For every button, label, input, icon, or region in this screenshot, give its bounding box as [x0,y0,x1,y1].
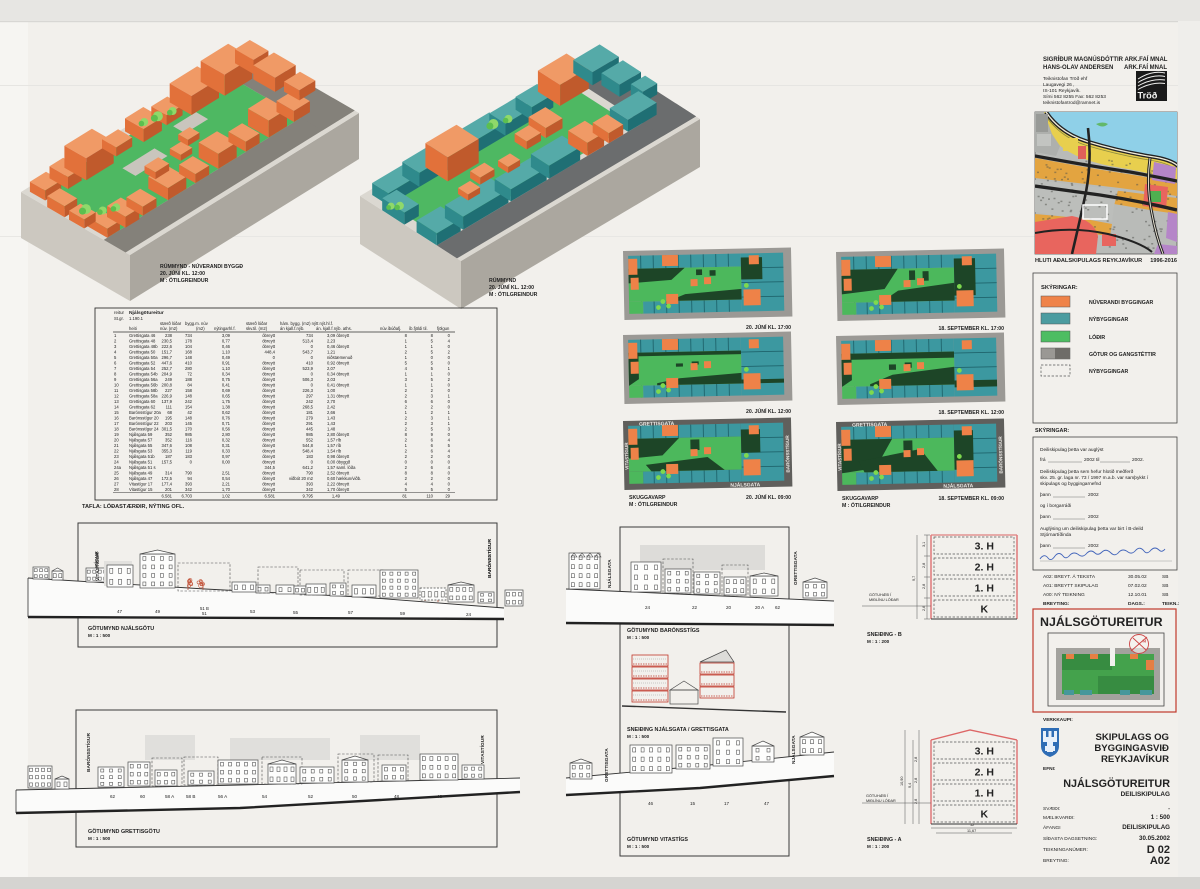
svg-text:GÖTUHÆÐ Í: GÖTUHÆÐ Í [866,794,889,798]
svg-text:50: 50 [352,794,358,799]
svg-text:óbreytt: óbreytt [262,388,276,393]
svg-text:1,70 óbreytt: 1,70 óbreytt [327,487,350,492]
svg-text:0,71: 0,71 [222,421,231,426]
svg-text:2002 til: 2002 til [1084,457,1099,463]
svg-text:3,09 óbreytt: 3,09 óbreytt [327,333,350,338]
svg-text:242: 242 [185,399,193,404]
svg-text:frá: frá [1040,457,1046,463]
svg-text:2002: 2002 [1088,543,1099,549]
svg-text:0,33: 0,33 [222,448,231,453]
svg-text:137,9: 137,9 [162,399,173,404]
svg-text:985: 985 [306,432,314,437]
svg-text:SNEIÐING NJÁLSGATA / GRETTISGA: SNEIÐING NJÁLSGATA / GRETTISGATA [627,726,729,733]
svg-text:Njálsgata 51: Njálsgata 51 [129,459,153,464]
svg-text:53: 53 [250,609,256,614]
svg-text:A01: BREYTT SKIPULAG: A01: BREYTT SKIPULAG [1043,583,1099,589]
svg-text:Grettisgata 50: Grettisgata 50 [129,349,156,354]
svg-text:Vitastígur 17: Vitastígur 17 [129,481,153,486]
svg-text:1,21: 1,21 [327,349,336,354]
svg-text:1,57 ríb: 1,57 ríb [327,443,342,448]
svg-text:1,54 ríb: 1,54 ríb [327,448,342,453]
svg-text:GÖTUMYND VITASTÍGS: GÖTUMYND VITASTÍGS [627,835,688,843]
svg-text:26: 26 [114,476,119,481]
svg-text:óbreytt: óbreytt [262,360,276,365]
svg-text:M : 1 : 500: M : 1 : 500 [627,635,650,640]
svg-text:1,02: 1,02 [222,493,231,498]
svg-text:445: 445 [306,426,314,431]
svg-text:20 A: 20 A [755,605,765,610]
svg-text:20. JÚNÍ KL. 12:00: 20. JÚNÍ KL. 12:00 [160,269,205,277]
svg-text:187: 187 [165,454,173,459]
svg-text:344,5: 344,5 [265,465,276,470]
svg-text:óbreytt: óbreytt [262,404,276,409]
svg-text:11,67: 11,67 [967,829,976,833]
svg-text:0,34: 0,34 [222,371,231,376]
svg-text:3. H: 3. H [975,745,994,757]
svg-text:1,43: 1,43 [327,415,336,420]
svg-text:þann: þann [1040,492,1051,498]
svg-text:nýtingarhl.f.: nýtingarhl.f. [214,326,236,331]
svg-text:60: 60 [140,794,146,799]
svg-text:29: 29 [445,493,450,498]
svg-text:St.gr.: St.gr. [114,316,124,321]
svg-text:314: 314 [165,470,173,475]
svg-text:LÓÐIR: LÓÐIR [1089,333,1105,341]
svg-text:104: 104 [185,344,193,349]
svg-text:342: 342 [185,487,193,492]
svg-text:Teiknistofan Tröð ehf: Teiknistofan Tröð ehf [1043,75,1088,82]
svg-text:BREYTING:: BREYTING: [1043,858,1069,864]
svg-text:18. SEPTEMBER KL. 09:00: 18. SEPTEMBER KL. 09:00 [939,496,1005,502]
svg-text:2. H: 2. H [975,561,994,573]
svg-text:172,5: 172,5 [162,476,173,481]
svg-text:SKÝRINGAR:: SKÝRINGAR: [1041,284,1078,291]
svg-text:28: 28 [114,487,119,492]
svg-text:543,7: 543,7 [303,349,314,354]
svg-text:M : ÓTILGREINDUR: M : ÓTILGREINDUR [160,276,209,284]
svg-text:226,3: 226,3 [303,388,314,393]
svg-text:297: 297 [306,393,314,398]
svg-text:2,8: 2,8 [922,563,926,568]
svg-text:352: 352 [165,432,173,437]
svg-text:0,31: 0,31 [222,443,231,448]
svg-text:21: 21 [114,443,119,448]
svg-text:Grettisgata 48: Grettisgata 48 [129,338,156,343]
svg-text:Grettisgata 48b: Grettisgata 48b [129,344,158,349]
svg-text:1,48: 1,48 [327,426,336,431]
svg-text:þann: þann [1040,543,1051,549]
svg-text:M : 1 : 500: M : 1 : 500 [88,836,111,841]
svg-text:K: K [981,808,989,820]
svg-text:2,80 óbreytt: 2,80 óbreytt [327,432,350,437]
svg-text:Njálsgata 51b: Njálsgata 51b [129,454,155,459]
svg-text:M : 1 : 200: M : 1 : 200 [867,844,890,849]
svg-text:84: 84 [187,382,192,387]
svg-text:Barónsstígur 24: Barónsstígur 24 [129,426,159,431]
svg-text:óbreytt: óbreytt [262,459,276,464]
svg-text:óbreytt: óbreytt [262,377,276,382]
svg-text:óbreytt: óbreytt [262,454,276,459]
svg-text:Sími 562 8255 Fax: 562 8253: Sími 562 8255 Fax: 562 8253 [1043,94,1106,100]
svg-text:ÁFANGI: ÁFANGI [1043,824,1061,831]
svg-text:2,8: 2,8 [922,606,926,611]
svg-text:355,3: 355,3 [162,448,173,453]
svg-text:17: 17 [114,421,119,426]
svg-text:170: 170 [185,426,193,431]
svg-text:24: 24 [645,605,651,610]
svg-text:17: 17 [724,801,730,806]
svg-text:SB: SB [1162,574,1168,580]
svg-text:EFNI:: EFNI: [1043,766,1056,772]
svg-text:SB: SB [1162,583,1168,589]
svg-text:Grettisgata 56b: Grettisgata 56b [129,382,158,387]
svg-text:1996-2016: 1996-2016 [1150,258,1177,264]
svg-text:Tröð: Tröð [1138,91,1158,101]
svg-text:M : 1 : 500: M : 1 : 500 [627,734,650,739]
svg-text:280: 280 [185,366,193,371]
svg-text:óbreytt: óbreytt [262,481,276,486]
svg-text:ARK.FAÍ MNAL: ARK.FAÍ MNAL [1124,63,1167,71]
svg-text:N: N [1143,639,1147,645]
svg-text:2,8: 2,8 [914,757,918,762]
svg-text:1. H: 1. H [975,787,994,799]
svg-text:393: 393 [306,481,314,486]
svg-text:Deiliskipulag þetta sem hefur: Deiliskipulag þetta sem hefur hlotið með… [1040,468,1134,475]
svg-text:46: 46 [437,794,443,799]
svg-text:MIÐLÍNU LÓÐAR: MIÐLÍNU LÓÐAR [866,798,896,803]
svg-text:1,57 ríb: 1,57 ríb [327,437,342,442]
svg-text:óbreytt: óbreytt [262,333,276,338]
svg-text:0,69: 0,69 [222,388,231,393]
svg-text:291: 291 [306,421,314,426]
svg-text:68: 68 [167,410,172,415]
svg-text:SKIPULAGS OG: SKIPULAGS OG [1095,732,1169,743]
svg-text:Deiliskipulag þetta var auglýs: Deiliskipulag þetta var auglýst [1040,447,1104,453]
svg-text:óbreytt: óbreytt [262,470,276,475]
svg-text:523,9: 523,9 [303,366,314,371]
svg-text:116: 116 [185,437,192,442]
svg-text:A02: A02 [1150,855,1170,867]
svg-text:20: 20 [114,437,119,442]
svg-text:SB: SB [1162,592,1168,598]
svg-text:10: 10 [114,382,119,387]
svg-text:skipulags og byggingarnefnd: skipulags og byggingarnefnd [1040,481,1101,487]
svg-text:reitur: reitur [114,310,125,315]
svg-text:Njálsgata 59: Njálsgata 59 [129,432,153,437]
svg-text:NÝBYGGINGAR: NÝBYGGINGAR [1089,368,1128,375]
svg-text:0,32: 0,32 [222,437,231,442]
svg-text:24: 24 [114,459,119,464]
svg-text:0,56: 0,56 [222,426,231,431]
svg-text:14: 14 [114,404,119,409]
svg-text:1,70: 1,70 [222,487,231,492]
svg-text:1,75: 1,75 [222,399,231,404]
svg-text:158: 158 [185,388,193,393]
svg-text:12: 12 [114,393,119,398]
svg-text:teiknistofantrod@ramnet.is: teiknistofantrod@ramnet.is [1043,100,1101,106]
svg-text:0,97: 0,97 [222,454,231,459]
svg-text:47: 47 [117,609,123,614]
svg-text:07.02.02: 07.02.02 [1128,583,1147,589]
svg-text:506,3: 506,3 [303,377,314,382]
svg-text:15: 15 [690,801,696,806]
svg-text:HLUTI AÐALSKIPULAGS REYKJAVÍKU: HLUTI AÐALSKIPULAGS REYKJAVÍKUR [1035,256,1142,264]
svg-text:790: 790 [306,470,314,475]
svg-text:skv.til. (m2): skv.til. (m2) [246,326,268,331]
svg-text:30.05.02: 30.05.02 [1128,574,1147,580]
svg-text:119: 119 [185,448,192,453]
svg-text:Njálsgata 57: Njálsgata 57 [129,437,153,442]
svg-text:1,43: 1,43 [327,421,336,426]
svg-text:227: 227 [165,388,173,393]
svg-text:0,34 óbreytt: 0,34 óbreytt [327,371,350,376]
svg-text:án kjall.f.nýb.: án kjall.f.nýb. [280,326,304,331]
svg-text:238: 238 [165,333,173,338]
svg-text:0,76: 0,76 [222,415,231,420]
svg-text:1,10: 1,10 [222,366,231,371]
svg-text:201: 201 [165,487,173,492]
svg-text:GRETTISGATA: GRETTISGATA [639,421,675,428]
svg-text:Grettisgata 54b: Grettisgata 54b [129,371,158,376]
svg-text:148: 148 [185,355,193,360]
svg-text:151,7: 151,7 [162,349,173,354]
svg-text:1,57 saml. lóða: 1,57 saml. lóða [327,465,356,470]
svg-text:410: 410 [185,360,193,365]
svg-text:M : ÓTILGREINDUR: M : ÓTILGREINDUR [842,501,891,509]
svg-text:0,91: 0,91 [222,360,231,365]
svg-text:GÖTUMYND BARÓNSSTÍGS: GÖTUMYND BARÓNSSTÍGS [627,626,700,634]
svg-text:12.10.01: 12.10.01 [1128,592,1147,598]
svg-text:183: 183 [306,454,314,459]
svg-text:222,6: 222,6 [162,344,173,349]
svg-text:58 A: 58 A [165,794,175,799]
svg-text:SÍÐASTA DAGSETNING:: SÍÐASTA DAGSETNING: [1043,835,1097,842]
svg-text:6.581: 6.581 [162,493,173,498]
svg-text:NÚVERANDI BYGGINGAR: NÚVERANDI BYGGINGAR [1089,299,1154,306]
svg-text:óbreytt: óbreytt [262,415,276,420]
svg-text:fjölgun: fjölgun [437,326,450,331]
svg-text:195: 195 [165,415,173,420]
svg-text:242: 242 [306,399,314,404]
svg-text:Njálsgata 49: Njálsgata 49 [129,470,153,475]
svg-text:án. kjall.f.nýb. aths.: án. kjall.f.nýb. aths. [316,326,352,331]
svg-text:Grettisgata 50a: Grettisgata 50a [129,355,158,360]
svg-text:641,2: 641,2 [303,465,314,470]
svg-text:0,41: 0,41 [222,382,231,387]
svg-text:SNEIÐING - B: SNEIÐING - B [867,632,902,638]
svg-text:72: 72 [187,371,192,376]
svg-text:íb.fjöldi til.: íb.fjöldi til. [409,326,428,331]
svg-text:10,90: 10,90 [900,776,904,786]
svg-text:1,38: 1,38 [222,404,231,409]
svg-text:157,5: 157,5 [162,459,173,464]
svg-text:3,09: 3,09 [222,333,231,338]
svg-text:148: 148 [185,393,193,398]
svg-text:RÚMMYND - NÚVERANDI BYGGÐ: RÚMMYND - NÚVERANDI BYGGÐ [160,263,243,270]
svg-text:óbreytt: óbreytt [262,487,276,492]
svg-text:Njálsgata 51 s: Njálsgata 51 s [129,465,156,470]
svg-text:SKUGGAVARP: SKUGGAVARP [842,496,879,502]
svg-text:niðstæmenuð: niðstæmenuð [327,355,353,360]
svg-text:óbreytt: óbreytt [262,476,276,481]
svg-text:410: 410 [306,360,314,365]
svg-text:0,65: 0,65 [222,393,231,398]
svg-text:NJÁLSGATA: NJÁLSGATA [606,559,613,588]
svg-text:IS-101 Reykjavík.: IS-101 Reykjavík. [1043,88,1081,94]
svg-text:0,92 óbreytt: 0,92 óbreytt [327,360,350,365]
svg-text:9.795: 9.795 [303,493,314,498]
svg-text:0,60 hækkun/viðb.: 0,60 hækkun/viðb. [327,476,361,481]
svg-text:30.05.2002: 30.05.2002 [1139,835,1171,842]
svg-text:DAGS.:: DAGS.: [1128,601,1145,607]
svg-text:2,8: 2,8 [914,778,918,783]
svg-text:REYKJAVÍKUR: REYKJAVÍKUR [1101,753,1169,765]
svg-text:1,00: 1,00 [327,388,336,393]
svg-text:94: 94 [187,476,192,481]
svg-text:BYGGINGASVIÐ: BYGGINGASVIÐ [1094,743,1169,754]
svg-text:GÖTUR OG GANGSTÉTTIR: GÖTUR OG GANGSTÉTTIR [1089,350,1156,358]
svg-text:óbreytt: óbreytt [262,366,276,371]
svg-text:544,8: 544,8 [303,443,314,448]
svg-text:Grettisgata 46: Grettisgata 46 [129,333,156,338]
svg-text:62: 62 [110,794,116,799]
svg-text:3,1: 3,1 [922,542,926,547]
svg-text:Grettisgata 52: Grettisgata 52 [129,360,156,365]
svg-text:MÆLIKVARÐI:: MÆLIKVARÐI: [1043,815,1075,821]
svg-text:188: 188 [185,377,193,382]
svg-text:óbreytt: óbreytt [262,371,276,376]
svg-text:0,46 óbreytt: 0,46 óbreytt [327,344,350,349]
svg-text:M : ÓTILGREINDUR: M : ÓTILGREINDUR [489,290,538,298]
svg-text:111: 111 [166,404,173,409]
svg-text:2,70: 2,70 [327,399,336,404]
svg-text:og í borgarráði: og í borgarráði [1040,502,1071,509]
svg-text:0,49: 0,49 [222,355,231,360]
svg-text:268,5: 268,5 [303,404,314,409]
svg-text:0,54: 0,54 [222,476,231,481]
svg-text:SNEIÐING - A: SNEIÐING - A [867,837,902,843]
svg-text:249: 249 [165,377,173,382]
svg-text:393: 393 [185,481,193,486]
svg-text:20. JÚNÍ KL. 12:00: 20. JÚNÍ KL. 12:00 [489,283,534,291]
svg-text:177,4: 177,4 [162,481,173,486]
svg-text:GÖTUMYND GRETTISGÖTU: GÖTUMYND GRETTISGÖTU [88,828,160,835]
svg-text:1,31 óbreytt: 1,31 óbreytt [327,393,350,398]
svg-text:DEILISKIPULAG: DEILISKIPULAG [1122,824,1170,831]
svg-text:Auglýsing um deiliskipulag þet: Auglýsing um deiliskipulag þetta var bir… [1040,526,1144,532]
svg-text:M : 1 : 500: M : 1 : 500 [88,633,111,638]
svg-text:145: 145 [185,421,193,426]
svg-text:SVÆÐI:: SVÆÐI: [1043,806,1060,812]
svg-text:Grettisgata 60: Grettisgata 60 [129,399,156,404]
svg-text:viðbót 20 m2: viðbót 20 m2 [289,476,314,481]
svg-text:0,62: 0,62 [222,410,231,415]
svg-text:1,10: 1,10 [222,349,231,354]
svg-text:20. JÚNÍ KL. 12:00: 20. JÚNÍ KL. 12:00 [746,407,791,415]
svg-text:MIÐLÍNU LÓÐAR: MIÐLÍNU LÓÐAR [869,597,899,602]
svg-text:Vitastígur 15: Vitastígur 15 [129,487,153,492]
svg-text:0,41 óbreytt: 0,41 óbreytt [327,382,350,387]
svg-text:18. SEPTEMBER KL. 17:00: 18. SEPTEMBER KL. 17:00 [939,326,1005,332]
svg-text:2002: 2002 [1088,514,1099,520]
svg-text:203: 203 [165,421,173,426]
svg-text:Stjórnartíðinda: Stjórnartíðinda [1040,531,1072,538]
svg-text:57: 57 [348,610,354,615]
svg-text:48: 48 [394,794,400,799]
svg-text:23: 23 [114,454,119,459]
svg-text:20: 20 [726,605,732,610]
svg-text:168: 168 [185,349,193,354]
svg-text:0,46: 0,46 [222,344,231,349]
svg-text:GRETTISGATA: GRETTISGATA [793,551,799,585]
svg-text:55: 55 [293,610,299,615]
svg-text:22: 22 [692,605,698,610]
svg-text:20. JÚNÍ KL. 09:00: 20. JÚNÍ KL. 09:00 [746,493,791,501]
svg-text:226,9: 226,9 [162,393,173,398]
svg-text:DEILISKIPULAG: DEILISKIPULAG [1121,791,1170,798]
svg-text:24: 24 [466,612,472,617]
svg-text:Njálsgata 53: Njálsgata 53 [129,448,153,453]
svg-text:Njálsgata 47: Njálsgata 47 [129,476,153,481]
svg-text:2,80: 2,80 [222,432,231,437]
svg-text:1 : 500: 1 : 500 [1151,814,1171,821]
svg-text:0,00 óbyggð: 0,00 óbyggð [327,459,351,464]
svg-text:204,9: 204,9 [162,371,173,376]
svg-text:2. H: 2. H [975,766,994,778]
svg-text:12: 12 [970,823,974,827]
svg-text:49: 49 [155,609,161,614]
svg-text:342: 342 [306,487,314,492]
svg-text:347,6: 347,6 [162,443,173,448]
svg-text:óbreytt: óbreytt [262,344,276,349]
svg-text:734: 734 [185,333,193,338]
svg-text:513,4: 513,4 [303,338,314,343]
svg-text:(m2): (m2) [196,326,205,331]
svg-text:548,4: 548,4 [303,448,314,453]
svg-text:óbreytt: óbreytt [262,432,276,437]
svg-text:181: 181 [306,410,314,415]
svg-text:GÖTUHÆÐ Í: GÖTUHÆÐ Í [869,593,892,597]
svg-text:NJÁLSGATA: NJÁLSGATA [943,482,973,490]
svg-text:0,98 óbreytt: 0,98 óbreytt [327,454,350,459]
svg-text:NJÁLSGÖTUREITUR: NJÁLSGÖTUREITUR [1063,777,1170,790]
svg-text:1.190.1: 1.190.1 [129,316,144,321]
svg-text:2002.: 2002. [1132,457,1144,463]
svg-text:230,5: 230,5 [162,338,173,343]
svg-text:Njálsgata 55: Njálsgata 55 [129,443,153,448]
svg-text:15: 15 [114,410,119,415]
svg-text:47: 47 [764,801,770,806]
svg-text:-: - [1168,806,1170,812]
svg-text:16: 16 [114,415,119,420]
svg-text:óbreytt: óbreytt [262,410,276,415]
svg-text:148: 148 [185,415,193,420]
svg-text:GRETTISGATA: GRETTISGATA [852,422,888,429]
svg-text:2,22 óbreytt: 2,22 óbreytt [327,481,350,486]
svg-text:51: 51 [202,611,207,616]
svg-text:skv. 25. gr. laga nr. 73 / 19: skv. 25. gr. laga nr. 73 / 1997 m.a.b. v… [1040,475,1149,481]
svg-text:296,7: 296,7 [162,355,173,360]
svg-text:18: 18 [114,426,119,431]
svg-text:27: 27 [114,481,119,486]
svg-text:46: 46 [648,801,654,806]
svg-text:Grettisgata 62: Grettisgata 62 [129,404,156,409]
svg-text:6.703: 6.703 [182,493,193,498]
svg-text:110: 110 [426,493,433,498]
svg-text:54: 54 [262,794,268,799]
svg-text:2,07: 2,07 [327,366,336,371]
svg-text:M : ÓTILGREINDUR: M : ÓTILGREINDUR [629,500,678,508]
